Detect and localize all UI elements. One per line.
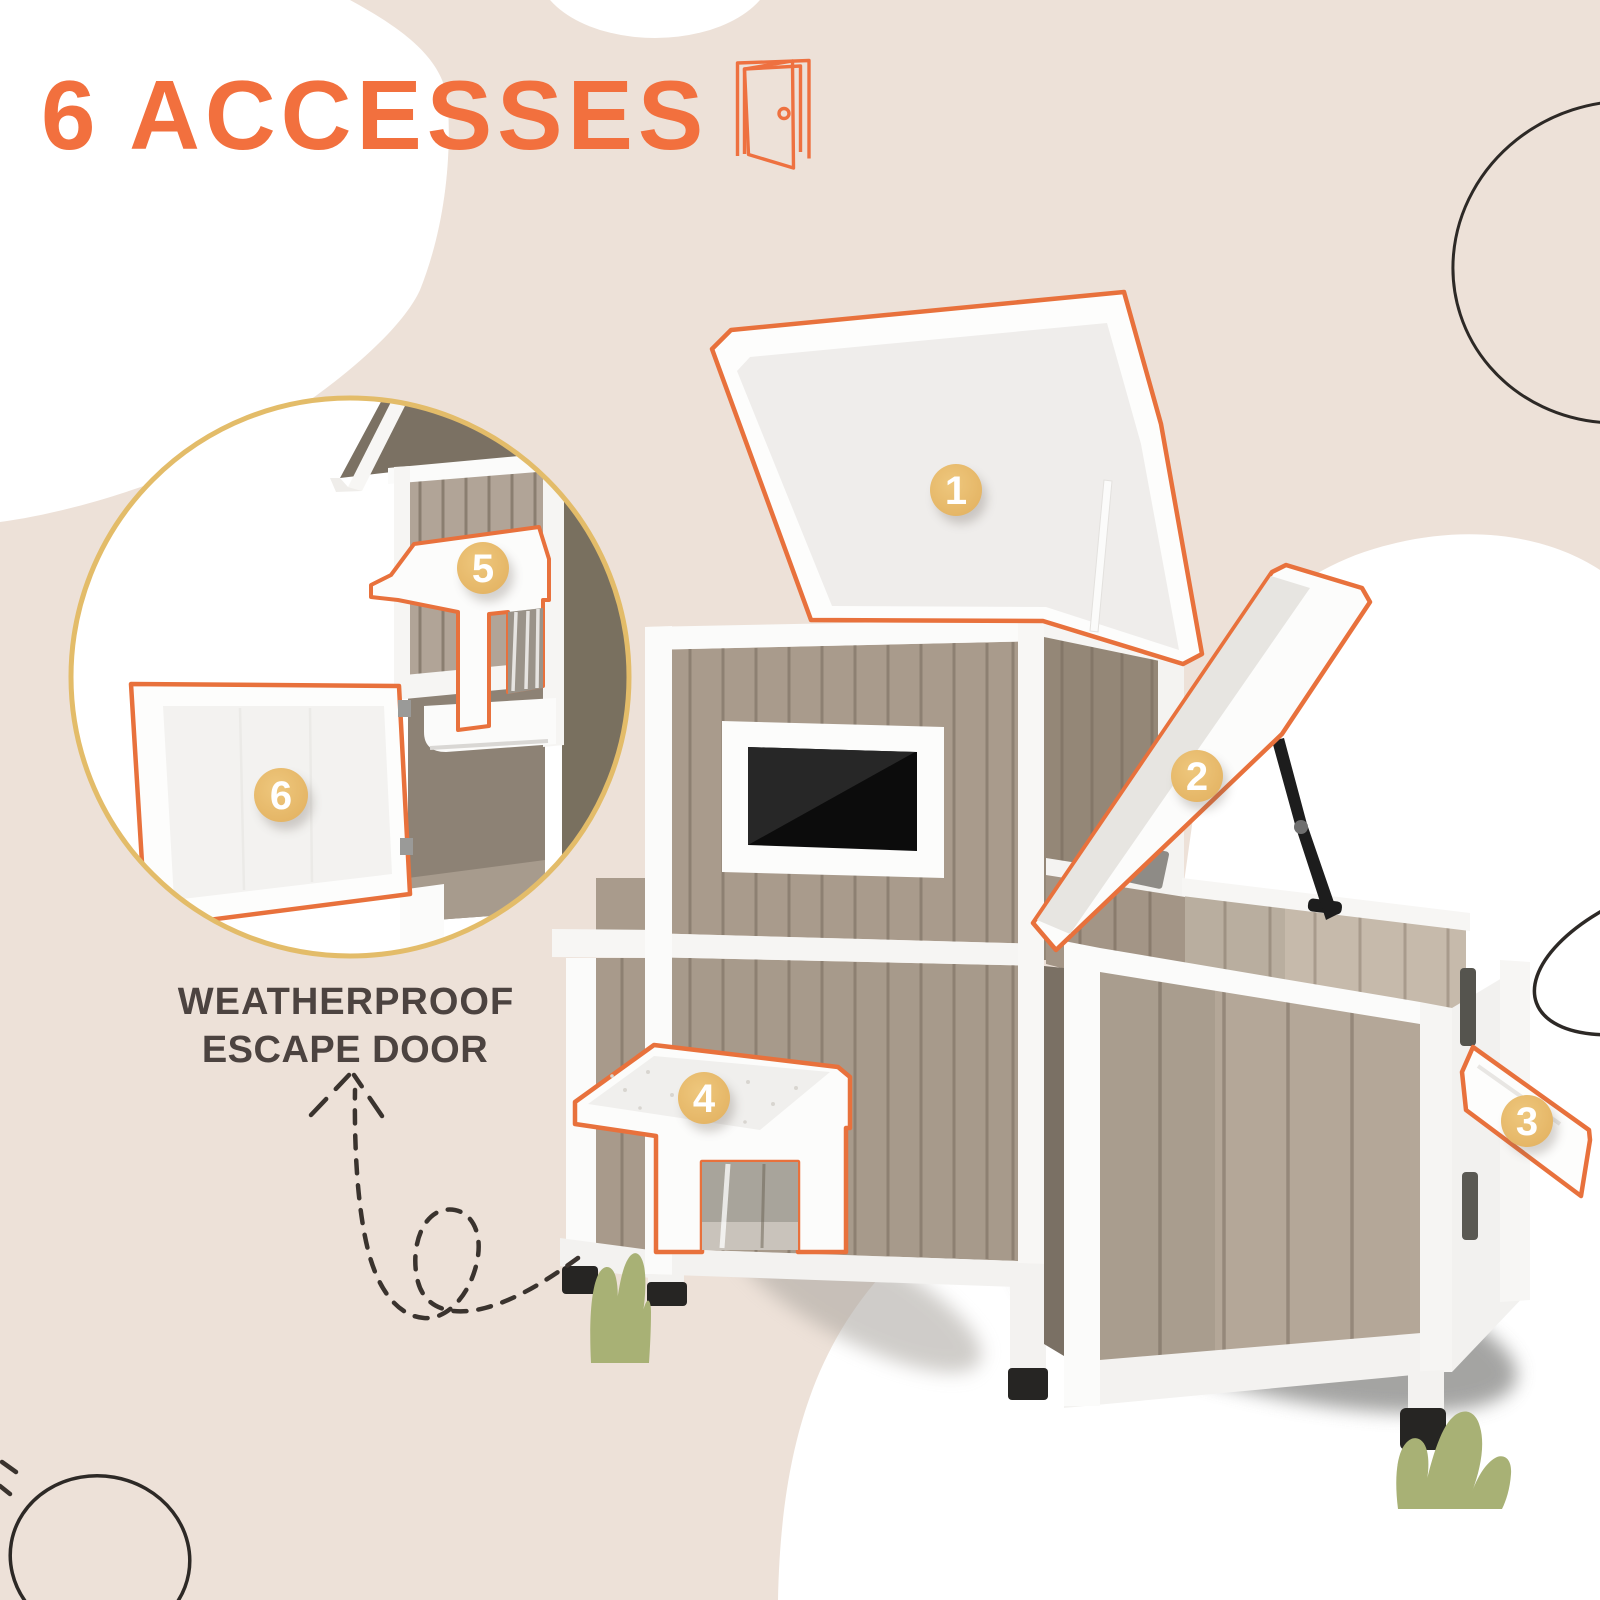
svg-text:4: 4 <box>693 1077 716 1121</box>
svg-text:3: 3 <box>1516 1100 1538 1144</box>
svg-text:WEATHERPROOF: WEATHERPROOF <box>178 981 514 1023</box>
svg-text:6: 6 <box>270 774 292 818</box>
svg-text:6 ACCESSES: 6 ACCESSES <box>41 60 708 170</box>
svg-text:5: 5 <box>472 547 494 591</box>
svg-text:1: 1 <box>945 469 967 513</box>
svg-text:ESCAPE DOOR: ESCAPE DOOR <box>202 1029 488 1071</box>
svg-text:2: 2 <box>1186 755 1208 799</box>
